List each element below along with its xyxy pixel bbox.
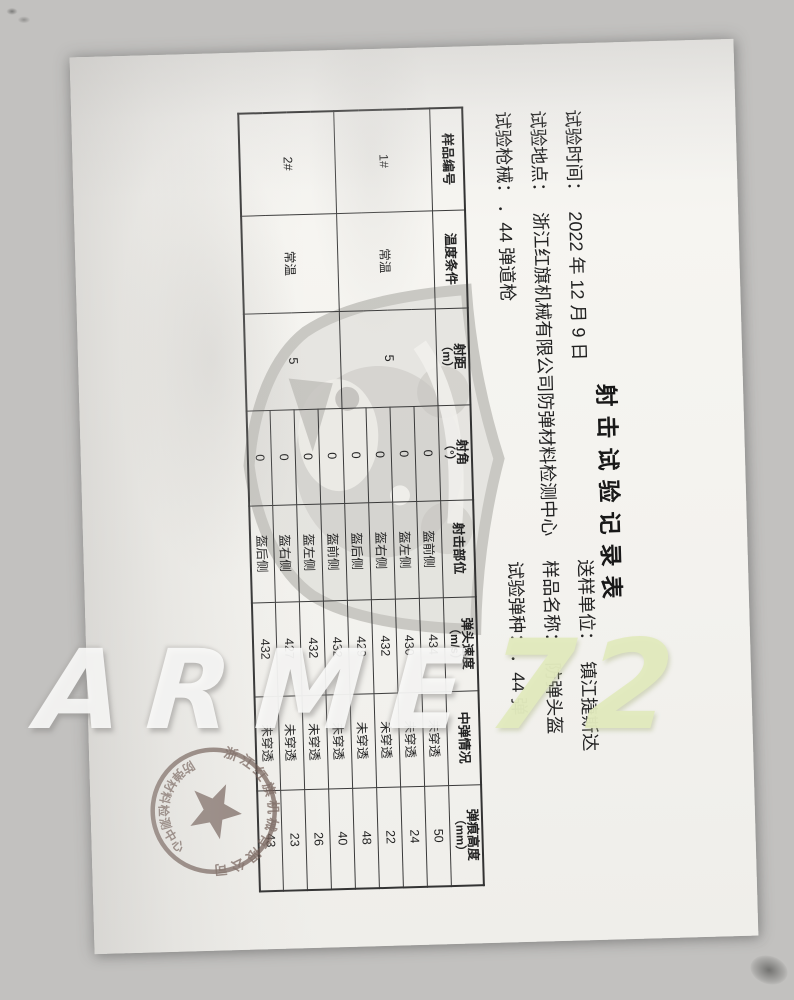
cell-height: 40 (329, 788, 356, 890)
cell-position: 盔前侧 (321, 503, 348, 601)
cell-angle: 0 (366, 407, 393, 503)
test-time-value: 2022 年 12 月 9 日 (565, 211, 589, 361)
col-header-position: 射击部位 (441, 499, 476, 597)
test-time-label: 试验时间： (562, 109, 585, 200)
col-header-dent-depth: 弹痕高度（mm） (449, 784, 484, 886)
cell-angle: 0 (247, 410, 274, 506)
cell-position: 盔前侧 (417, 500, 444, 598)
cell-angle: 0 (271, 409, 298, 505)
cell-angle: 0 (295, 409, 322, 505)
cell-angle: 0 (319, 408, 346, 504)
stamp-arc-bottom-text: 防弹材料检测中心 (151, 755, 199, 858)
svg-text:防弹材料检测中心: 防弹材料检测中心 (151, 755, 199, 858)
col-header-temperature: 温度条件 (433, 209, 468, 308)
test-record-document: 射击试验记录表 试验时间：2022 年 12 月 9 日 试验地点：浙江红旗机械… (70, 39, 759, 954)
col-header-distance: 射距（m） (436, 307, 471, 405)
cell-position: 盔后侧 (249, 505, 276, 603)
cell-position: 盔右侧 (273, 504, 300, 602)
photo-watermark: ARME72 (34, 624, 690, 748)
cell-temperature: 常温 (241, 213, 340, 314)
col-header-sample-no: 样品编号 (430, 108, 465, 211)
cell-position: 盔左侧 (393, 501, 420, 599)
cell-position: 盔后侧 (345, 502, 372, 600)
cell-position: 盔左侧 (297, 504, 324, 602)
test-location-value: 浙江红旗机械有限公司防弹材料检测中心 (530, 212, 559, 536)
cell-sample: 1# (334, 108, 433, 213)
cell-height: 50 (425, 785, 452, 887)
cell-height: 26 (305, 788, 332, 890)
test-location-label: 试验地点： (527, 110, 550, 201)
watermark-white-text: ARME (33, 626, 492, 754)
col-header-angle: 射角（°） (438, 404, 473, 500)
test-gun-label: 试验枪械： (492, 111, 514, 193)
cell-distance: 5 (340, 308, 439, 408)
cell-height: 24 (401, 786, 428, 888)
cell-angle: 0 (343, 407, 370, 503)
cell-height: 48 (353, 787, 380, 889)
cell-angle: 0 (390, 406, 417, 502)
cell-sample: 2# (238, 111, 337, 216)
test-gun-value: ．44 弹道枪 (495, 204, 518, 302)
cell-temperature: 常温 (337, 210, 436, 311)
info-block-left: 试验时间：2022 年 12 月 9 日 试验地点：浙江红旗机械有限公司防弹材料… (484, 109, 601, 538)
cell-distance: 5 (244, 311, 343, 411)
scan-corner-artifact (3, 3, 33, 27)
watermark-yellow-text: 72 (483, 614, 690, 758)
star-icon (189, 781, 245, 842)
cell-angle: 0 (414, 405, 441, 501)
scanned-sheet: 射击试验记录表 试验时间：2022 年 12 月 9 日 试验地点：浙江红旗机械… (70, 39, 759, 954)
cell-height: 22 (377, 786, 404, 888)
cell-position: 盔右侧 (369, 502, 396, 600)
